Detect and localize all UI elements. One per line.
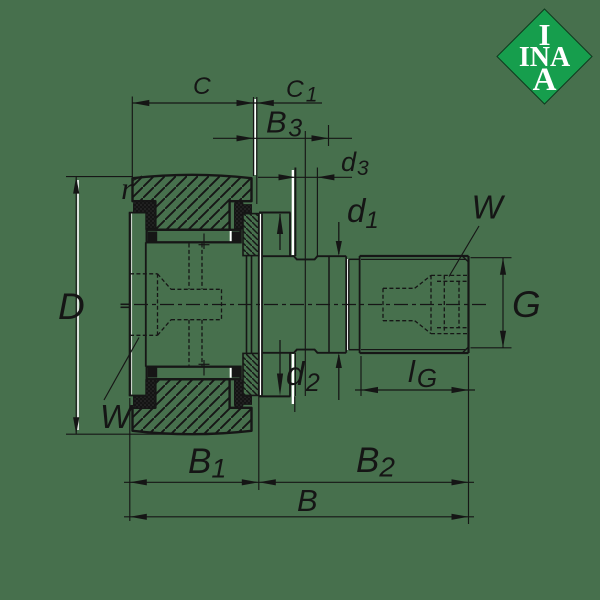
svg-text:G: G xyxy=(512,284,541,325)
svg-text:D: D xyxy=(58,286,85,327)
svg-text:A: A xyxy=(533,62,557,98)
svg-text:B: B xyxy=(297,483,318,518)
svg-text:W: W xyxy=(100,398,134,435)
svg-text:C: C xyxy=(193,73,211,100)
svg-text:W: W xyxy=(472,189,506,226)
svg-text:r: r xyxy=(121,170,134,206)
